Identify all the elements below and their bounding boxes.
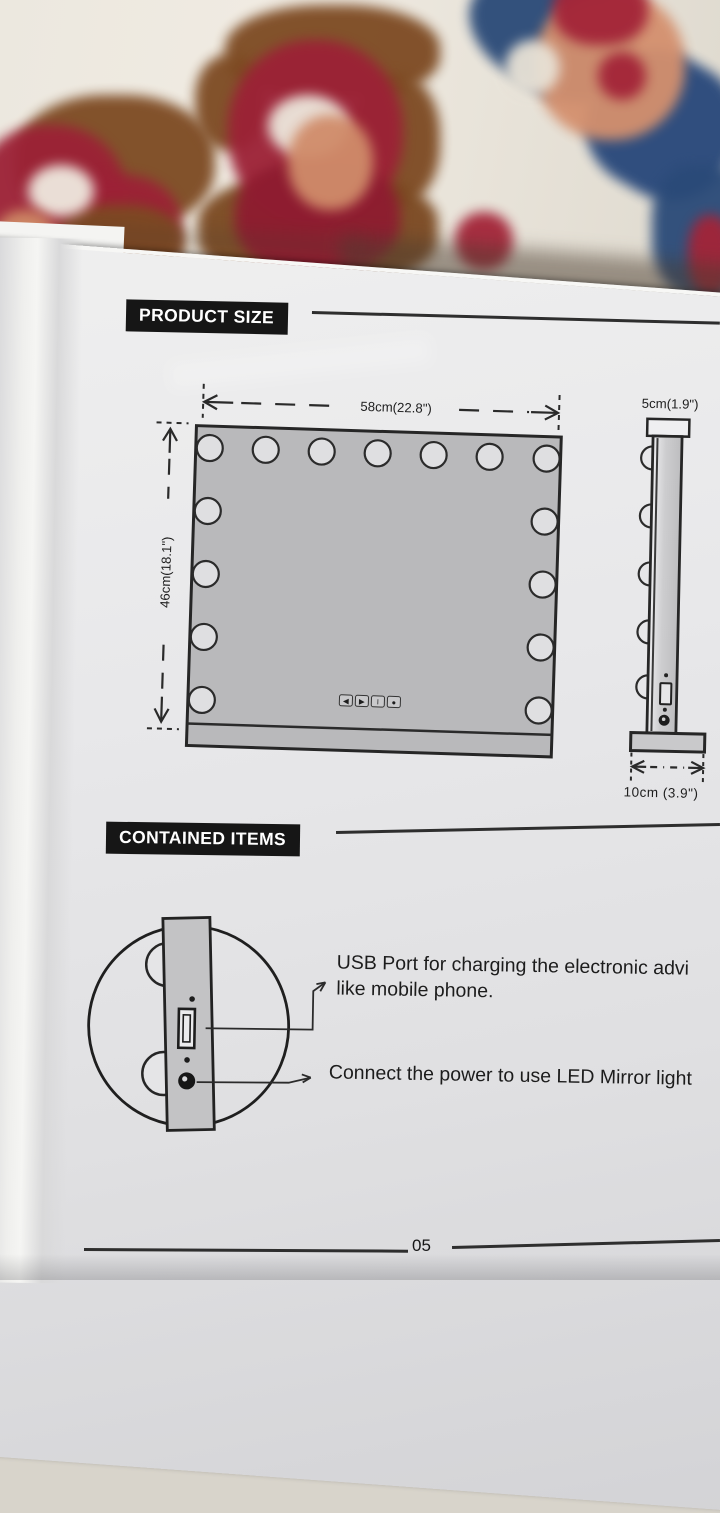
mirror-front-view: 58cm(22.8") 46cm(18.1") ◀ ▶ I ● bbox=[134, 376, 581, 762]
control-next-icon: ▶ bbox=[355, 695, 369, 707]
control-prev-icon: ◀ bbox=[339, 694, 353, 706]
footer-rule-right bbox=[452, 1239, 720, 1249]
bottom-shadow bbox=[0, 1254, 720, 1280]
page-number: 05 bbox=[412, 1236, 431, 1256]
control-dot-icon: ● bbox=[387, 696, 401, 708]
mirror-touch-controls: ◀ ▶ I ● bbox=[339, 694, 401, 708]
contained-items-heading: CONTAINED ITEMS bbox=[106, 822, 301, 857]
heading-rule bbox=[336, 823, 720, 834]
product-size-heading: PRODUCT SIZE bbox=[126, 299, 289, 334]
footer-rule-left bbox=[84, 1248, 408, 1252]
mirror-side-view: 5cm(1.9") bbox=[599, 392, 720, 806]
control-power-icon: I bbox=[371, 695, 385, 707]
usb-detail-diagram bbox=[73, 890, 720, 1166]
usb-detail-figure: USB Port for charging the electronic adv… bbox=[73, 890, 720, 1166]
heading-rule bbox=[312, 311, 720, 324]
usb-note: USB Port for charging the electronic adv… bbox=[336, 951, 689, 1009]
base-dimension-label: 10cm (3.9") bbox=[623, 784, 698, 801]
mirror-side-diagram bbox=[599, 392, 720, 806]
